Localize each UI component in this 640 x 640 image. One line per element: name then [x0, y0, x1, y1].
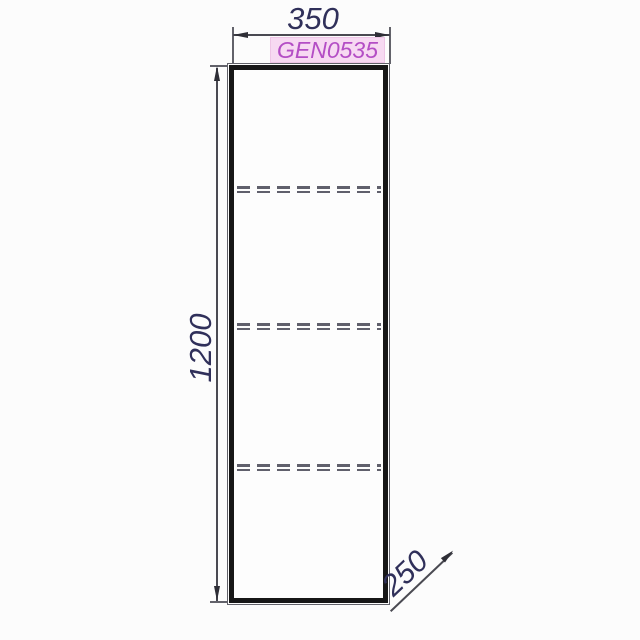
- depth-dimension-line: 250: [390, 552, 453, 612]
- height-dim-arrow-bottom-icon: [214, 586, 220, 601]
- cabinet-outline: [227, 63, 390, 605]
- shelf-dashed-line: [237, 464, 381, 471]
- height-dimension-label: 1200: [185, 293, 217, 403]
- height-extension-line-bottom: [210, 601, 228, 603]
- product-code-badge: GEN0535: [270, 37, 385, 63]
- cabinet-front-panel: [229, 65, 388, 603]
- height-dim-arrow-top-icon: [214, 66, 220, 81]
- shelf-dashed-line: [237, 186, 381, 193]
- cabinet-technical-drawing: 350 GEN0535 1200 250: [0, 0, 640, 640]
- width-dimension-label: 350: [238, 3, 388, 35]
- shelf-dashed-line: [237, 323, 381, 330]
